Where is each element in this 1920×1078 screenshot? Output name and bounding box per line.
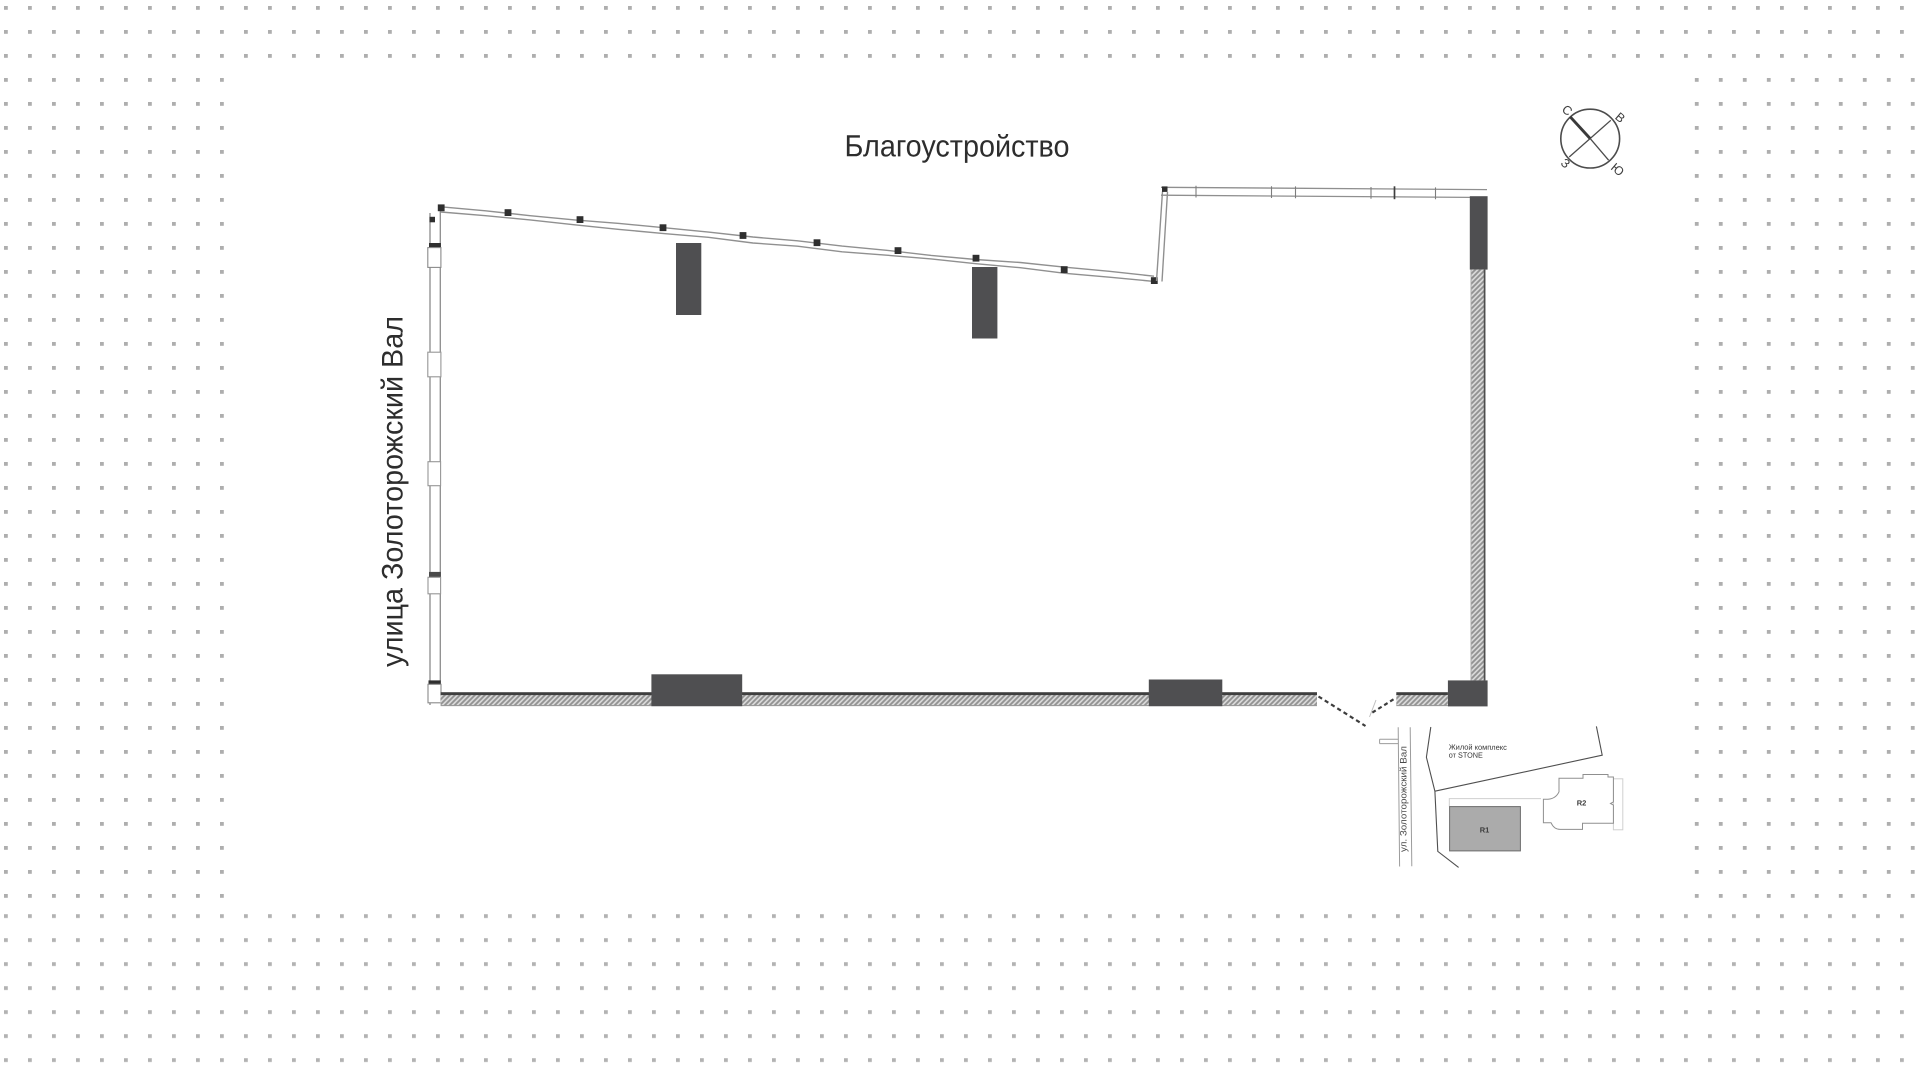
svg-text:от STONE: от STONE [1449,751,1483,760]
svg-text:R2: R2 [1577,798,1587,807]
svg-text:ул. Золоторожский Вал: ул. Золоторожский Вал [1399,746,1410,852]
svg-text:улица Золоторожский Вал: улица Золоторожский Вал [377,316,410,667]
svg-text:Ю: Ю [1608,160,1627,179]
svg-text:З: З [1558,156,1573,172]
svg-text:С: С [1559,102,1575,119]
svg-text:Благоустройство: Благоустройство [844,129,1069,163]
svg-text:R1: R1 [1480,825,1490,834]
